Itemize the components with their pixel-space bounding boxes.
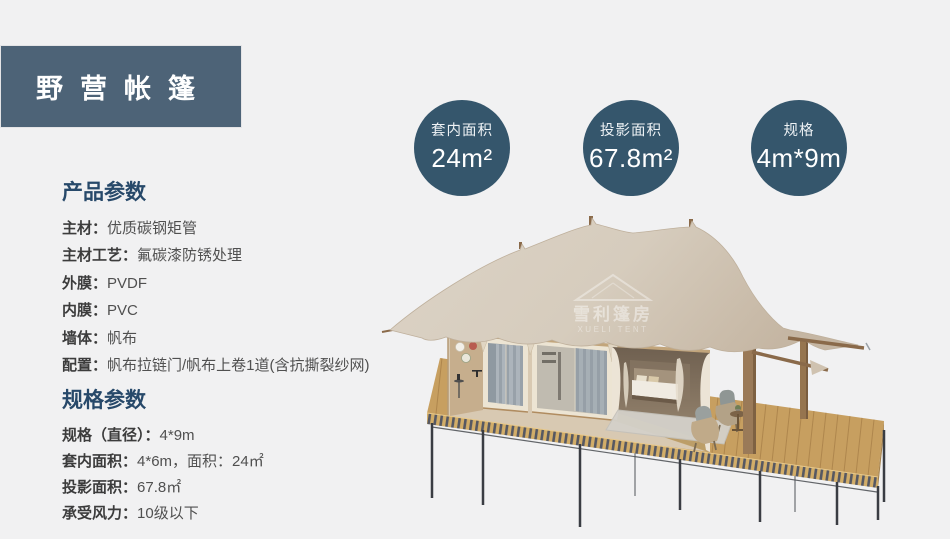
param-value: 氟碳漆防锈处理 [137, 247, 242, 264]
stat-label: 规格 [751, 119, 847, 140]
spec-params-section: 规格参数 规格（直径）：4*9m 套内面积：4*6m，面积：24㎡ 投影面积：6… [62, 384, 402, 527]
param-label: 主材工艺： [62, 247, 137, 264]
param-value: 帆布拉链门/帆布上卷1道(含抗撕裂纱网) [107, 357, 370, 374]
stat-label: 套内面积 [414, 119, 510, 140]
param-row: 配置：帆布拉链门/帆布上卷1道(含抗撕裂纱网) [62, 352, 402, 379]
watermark-en: XUELI TENT [577, 325, 648, 334]
param-label: 内膜： [62, 302, 107, 319]
page-title: 野营帐篷 [0, 67, 212, 106]
stat-value: 67.8m² [583, 143, 679, 174]
param-row: 墙体：帆布 [62, 325, 402, 352]
param-value: PVC [107, 302, 138, 319]
param-label: 配置： [62, 357, 107, 374]
param-row: 外膜：PVDF [62, 270, 402, 297]
param-label: 墙体： [62, 330, 107, 347]
param-value: 优质碳钢矩管 [107, 220, 197, 237]
param-row: 主材：优质碳钢矩管 [62, 215, 402, 242]
cabin-window-2 [532, 341, 612, 420]
watermark-cn: 雪利篷房 [573, 304, 653, 324]
cabin-window-1 [483, 338, 528, 412]
param-value: 4*9m [160, 427, 195, 444]
tent-render: 雪利篷房 XUELI TENT [380, 200, 950, 534]
param-row: 投影面积：67.8㎡ [62, 475, 402, 501]
param-value: 4*6m，面积：24㎡ [137, 453, 264, 470]
stat-label: 投影面积 [583, 119, 679, 140]
stat-value: 24m² [414, 143, 510, 174]
param-row: 承受风力：10级以下 [62, 501, 402, 527]
param-value: 帆布 [107, 330, 137, 347]
param-value: 10级以下 [137, 505, 199, 522]
param-row: 主材工艺：氟碳漆防锈处理 [62, 242, 402, 269]
product-params-section: 产品参数 主材：优质碳钢矩管 主材工艺：氟碳漆防锈处理 外膜：PVDF 内膜：P… [62, 176, 402, 379]
param-value: PVDF [107, 275, 147, 292]
param-label: 外膜： [62, 275, 107, 292]
section-heading: 产品参数 [62, 176, 402, 206]
stat-circle-size: 规格 4m*9m [751, 100, 847, 196]
page-title-banner: 野营帐篷 [0, 45, 242, 128]
stat-value: 4m*9m [751, 143, 847, 174]
param-label: 承受风力： [62, 505, 137, 522]
param-label: 投影面积： [62, 479, 137, 496]
param-label: 主材： [62, 220, 107, 237]
param-row: 规格（直径）：4*9m [62, 423, 402, 449]
param-label: 套内面积： [62, 453, 137, 470]
param-value: 67.8㎡ [137, 479, 181, 496]
param-row: 套内面积：4*6m，面积：24㎡ [62, 449, 402, 475]
decor-wall [450, 336, 483, 416]
section-heading: 规格参数 [62, 384, 402, 414]
stat-circle-inner-area: 套内面积 24m² [414, 100, 510, 196]
param-label: 规格（直径）： [62, 427, 160, 444]
stat-circle-projection-area: 投影面积 67.8m² [583, 100, 679, 196]
param-row: 内膜：PVC [62, 297, 402, 324]
tent-render-image: 雪利篷房 XUELI TENT [380, 200, 950, 534]
